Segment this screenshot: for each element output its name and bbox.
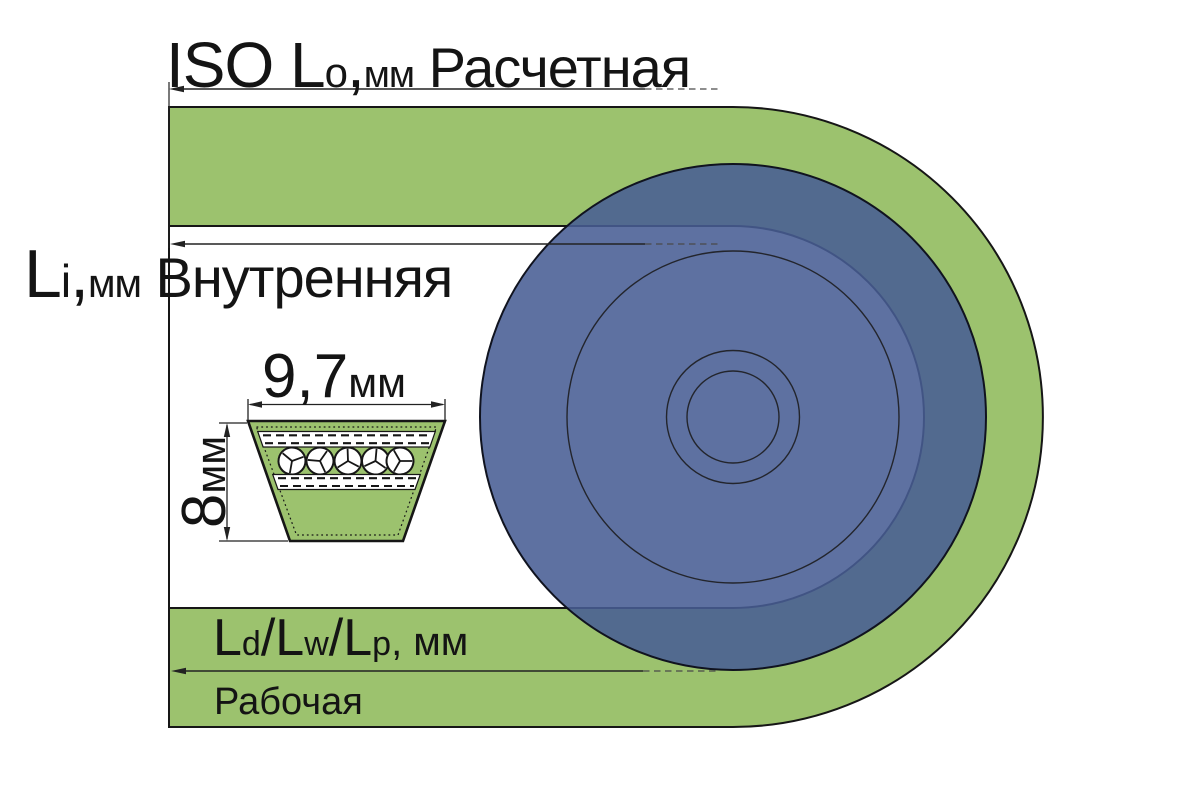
label-segment: i [61, 255, 70, 307]
label-segment: d [242, 625, 261, 663]
label-segment: мм [88, 262, 141, 306]
diagram-canvas [0, 0, 1200, 800]
label-segment: 9,7 [262, 342, 348, 411]
label-segment: , мм [391, 620, 468, 664]
pulley-disc [480, 164, 986, 670]
label-segment: o [325, 49, 347, 96]
tension-strip-top [258, 432, 436, 448]
outer-length-label: ISO Lo,мм Расчетная [166, 33, 690, 97]
arrow-right-icon [431, 401, 445, 407]
label-segment: Внутренняя [141, 246, 452, 309]
label-segment: мм [348, 359, 406, 406]
label-segment: /L [329, 609, 372, 667]
belt-width-label: 9,7мм [262, 346, 406, 408]
belt-cross-section [248, 421, 445, 541]
label-segment: мм [364, 54, 414, 96]
label-segment: ISO L [166, 29, 325, 101]
label-segment: мм [187, 436, 234, 494]
label-segment: Расчетная [414, 36, 690, 99]
tension-strip-bottom [273, 475, 421, 490]
label-segment: w [304, 625, 329, 663]
label-segment: L [24, 236, 61, 312]
pitch-length-label: Ld/Lw/Lp, мм [213, 612, 468, 664]
label-segment: Рабочая [214, 681, 363, 723]
belt-height-label: 8мм [174, 420, 236, 544]
working-length-label: Рабочая [214, 683, 363, 721]
label-segment: p [372, 625, 391, 663]
inner-length-label: Li,мм Внутренняя [24, 240, 452, 308]
arrow-left-icon [248, 401, 262, 407]
label-segment: /L [261, 609, 304, 667]
label-segment: L [213, 609, 242, 667]
label-segment: 8 [170, 494, 239, 528]
label-segment: , [347, 29, 364, 101]
belt-pulley-diagram: ISO Lo,мм Расчетная Li,мм Внутренняя 9,7… [0, 0, 1200, 800]
label-segment: , [70, 236, 88, 312]
